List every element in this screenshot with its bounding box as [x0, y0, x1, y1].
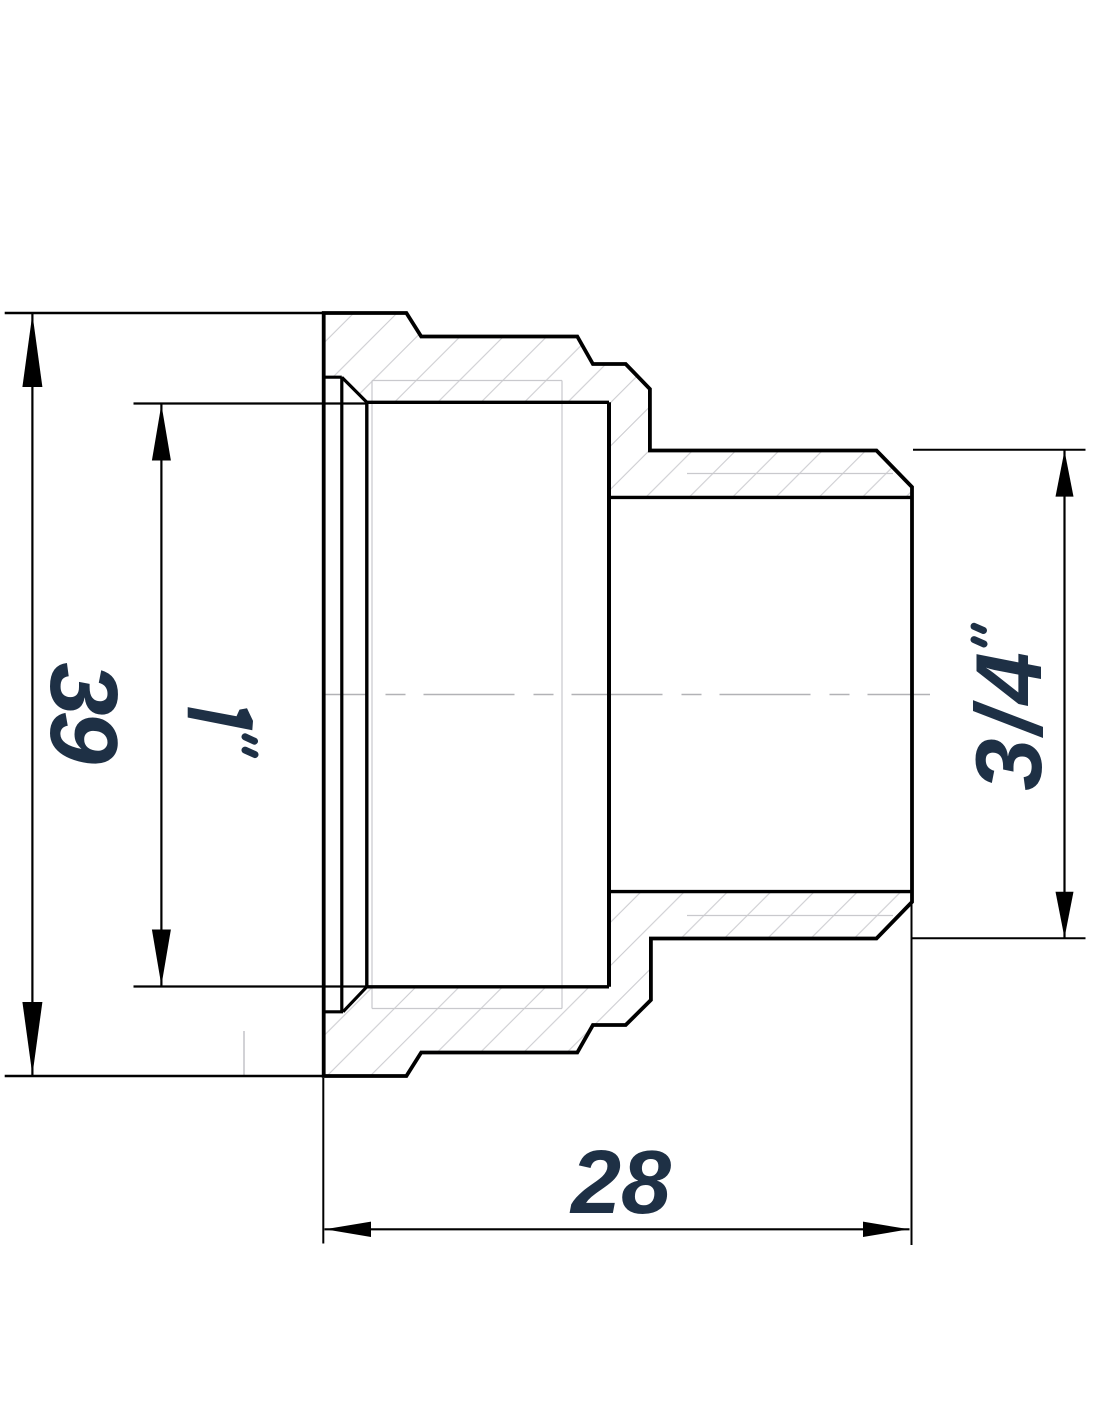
- svg-text:28: 28: [569, 1133, 671, 1233]
- svg-text:3/4: 3/4: [956, 648, 1061, 791]
- svg-text:39: 39: [30, 662, 137, 763]
